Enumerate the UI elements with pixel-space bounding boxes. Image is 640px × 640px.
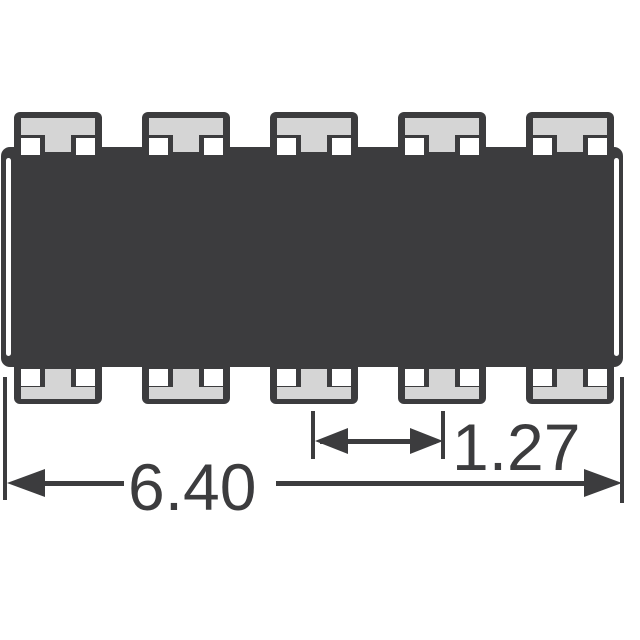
pad-notch-left	[21, 138, 40, 155]
pad-stem	[45, 369, 71, 393]
pad-stem	[557, 369, 583, 393]
pad-stem	[429, 126, 455, 152]
pad-notch-left	[405, 369, 424, 386]
length-arrow-left-icon	[7, 469, 45, 497]
pin-bottom-3	[270, 357, 358, 404]
length-dimension-line-left	[40, 481, 124, 486]
pin-bottom-2	[142, 357, 230, 404]
pad-stem	[429, 369, 455, 393]
pin-top-2	[142, 112, 230, 158]
package-dimension-drawing: 1.27 6.40	[0, 0, 640, 640]
pin-bottom-5	[526, 357, 614, 404]
pad-notch-left	[277, 138, 296, 155]
pad-notch-left	[405, 138, 424, 155]
pad-notch-left	[533, 138, 552, 155]
pad-notch-left	[533, 369, 552, 386]
pad-notch-right	[332, 369, 351, 386]
pad-stem	[173, 369, 199, 393]
pad-notch-left	[277, 369, 296, 386]
pin-bottom-4	[398, 357, 486, 404]
pad-notch-left	[21, 369, 40, 386]
pitch-arrow-left-icon	[315, 428, 348, 454]
length-dimension-label: 6.40	[128, 454, 256, 520]
pad-notch-right	[460, 369, 479, 386]
pad-notch-right	[204, 369, 223, 386]
pad-notch-right	[332, 138, 351, 155]
pad-notch-right	[204, 138, 223, 155]
pin-bottom-1	[14, 357, 102, 404]
pad-stem	[301, 369, 327, 393]
body-highlight-left	[6, 158, 11, 356]
body-highlight-right	[614, 158, 619, 356]
pad-notch-right	[76, 138, 95, 155]
pitch-arrow-right-icon	[410, 428, 443, 454]
length-arrow-right-icon	[584, 469, 622, 497]
pin-top-5	[526, 112, 614, 158]
pin-top-4	[398, 112, 486, 158]
pad-stem	[557, 126, 583, 152]
pin-top-1	[14, 112, 102, 158]
pad-notch-right	[460, 138, 479, 155]
length-dimension-line-right	[276, 481, 586, 486]
pad-stem	[301, 126, 327, 152]
pad-stem	[45, 126, 71, 152]
pin-top-3	[270, 112, 358, 158]
pad-notch-right	[76, 369, 95, 386]
component-body	[1, 147, 623, 367]
pad-notch-left	[149, 369, 168, 386]
pad-notch-right	[588, 369, 607, 386]
pad-stem	[173, 126, 199, 152]
pad-notch-left	[149, 138, 168, 155]
pad-notch-right	[588, 138, 607, 155]
pitch-dimension-label: 1.27	[452, 414, 580, 480]
